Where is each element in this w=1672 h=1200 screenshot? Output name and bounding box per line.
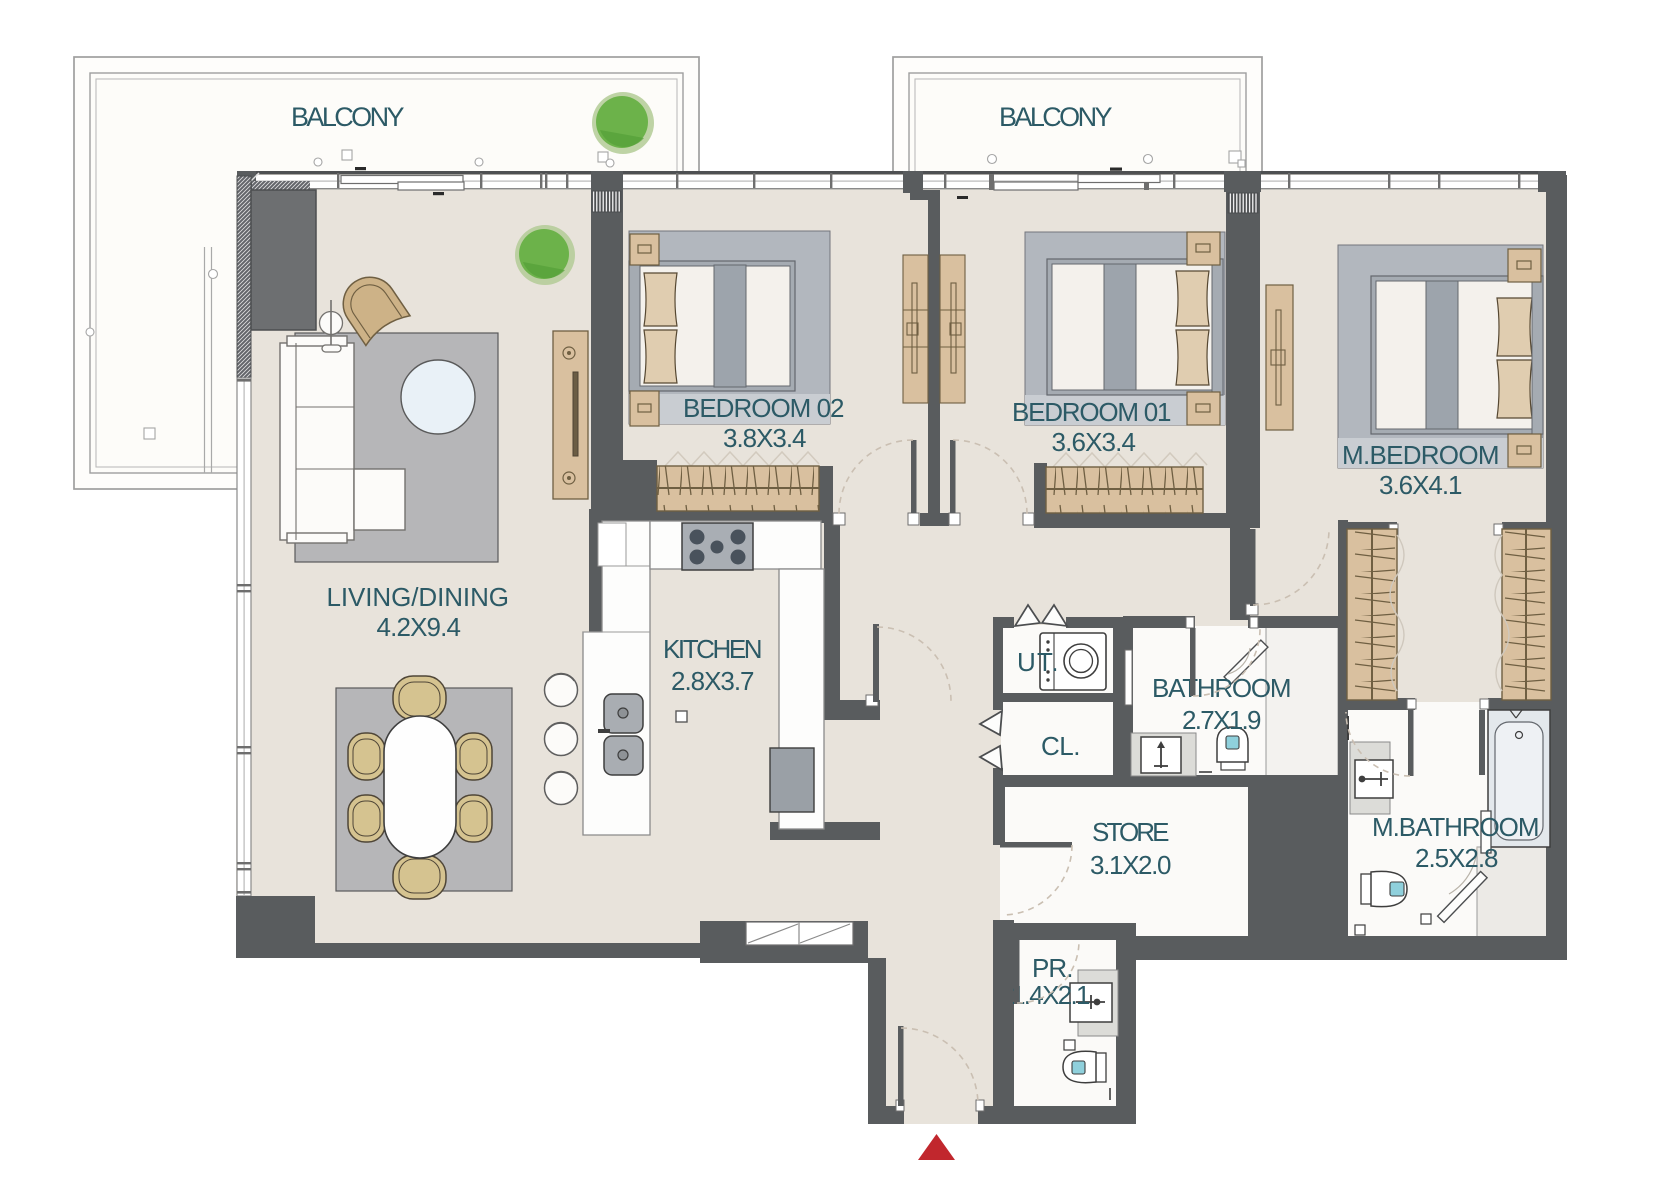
svg-text:3.6X4.1: 3.6X4.1 bbox=[1379, 470, 1463, 500]
svg-text:BATHROOM: BATHROOM bbox=[1152, 673, 1292, 703]
svg-text:CL.: CL. bbox=[1041, 731, 1081, 761]
svg-text:PR.: PR. bbox=[1032, 953, 1074, 983]
svg-text:STORE: STORE bbox=[1092, 817, 1170, 847]
svg-text:BALCONY: BALCONY bbox=[999, 102, 1113, 132]
svg-text:M.BATHROOM: M.BATHROOM bbox=[1372, 812, 1540, 842]
svg-text:4.2X9.4: 4.2X9.4 bbox=[377, 612, 462, 642]
svg-text:2.8X3.7: 2.8X3.7 bbox=[671, 666, 755, 696]
svg-text:BEDROOM 02: BEDROOM 02 bbox=[683, 393, 845, 423]
svg-text:KITCHEN: KITCHEN bbox=[663, 634, 763, 664]
svg-text:BEDROOM 01: BEDROOM 01 bbox=[1012, 397, 1172, 427]
svg-text:BALCONY: BALCONY bbox=[291, 102, 405, 132]
svg-text:3.1X2.0: 3.1X2.0 bbox=[1090, 850, 1172, 880]
svg-text:LIVING/DINING: LIVING/DINING bbox=[327, 582, 510, 612]
svg-text:2.7X1.9: 2.7X1.9 bbox=[1182, 705, 1262, 735]
svg-text:3.8X3.4: 3.8X3.4 bbox=[723, 423, 807, 453]
svg-text:M.BEDROOM: M.BEDROOM bbox=[1342, 440, 1500, 470]
svg-text:1.4X2.1: 1.4X2.1 bbox=[1011, 980, 1091, 1010]
svg-text:UT.: UT. bbox=[1017, 647, 1059, 677]
svg-text:2.5X2.8: 2.5X2.8 bbox=[1415, 843, 1499, 873]
svg-text:3.6X3.4: 3.6X3.4 bbox=[1052, 427, 1137, 457]
